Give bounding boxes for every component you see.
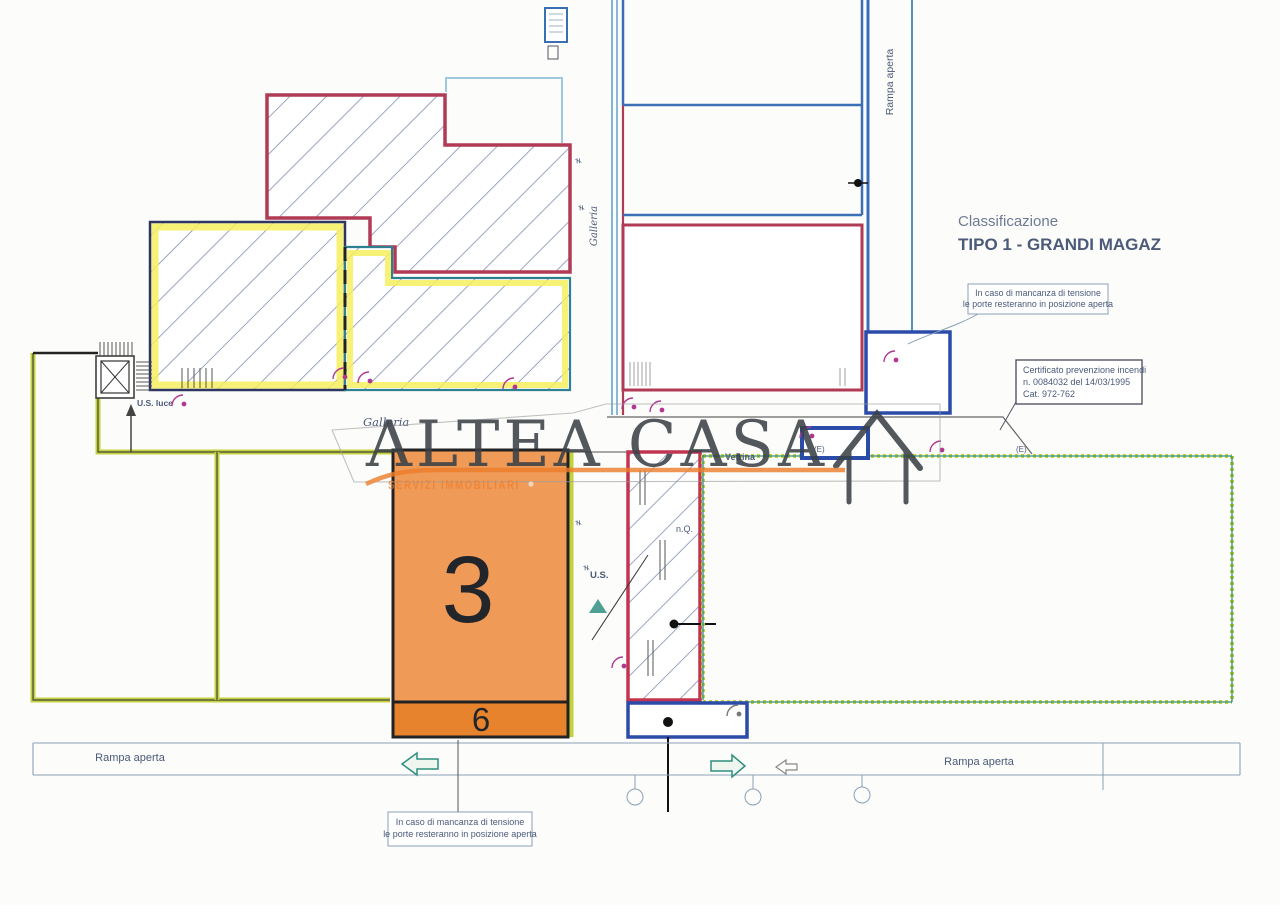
svg-text:≠: ≠ <box>572 520 583 526</box>
note-line: In caso di mancanza di tensione <box>396 817 525 827</box>
classification-title: Classificazione <box>958 213 1058 230</box>
ramp-right-label: Rampa aperta <box>944 756 1015 768</box>
exit-left-label: U.S. luce <box>137 398 173 408</box>
watermark-subtitle: SERVIZI IMMOBILIARI <box>388 480 520 492</box>
watermark-dot <box>528 481 533 486</box>
building-right-red <box>623 225 862 390</box>
exit-center-label: U.S. <box>590 570 608 581</box>
note-line: In caso di mancanza di tensione <box>975 288 1101 298</box>
stairwell-elevator <box>96 356 134 398</box>
emergency-mark-2: (E) <box>1016 445 1027 454</box>
door-note-bottom: In caso di mancanza di tensione le porte… <box>383 812 537 846</box>
certificate-line: Certificato prevenzione incendi <box>1023 365 1146 375</box>
certificate-line: Cat. 972-762 <box>1023 389 1075 399</box>
classification-type: TIPO 1 - GRANDI MAGAZ <box>958 235 1161 254</box>
note-line: le porte resteranno in posizione aperta <box>963 299 1113 309</box>
gallery-vertical-label: Galleria <box>589 206 600 246</box>
floorplan-scan-page: Rampa aperta 3 6 n.Q. <box>0 0 1280 905</box>
unit-number: 3 <box>442 537 495 643</box>
ramp-top-label: Rampa aperta <box>884 49 896 116</box>
column-dot <box>663 717 673 727</box>
certificate-line: n. 0084032 del 14/03/1995 <box>1023 377 1130 387</box>
ramp-left-label: Rampa aperta <box>95 752 166 764</box>
nq-label: n.Q. <box>676 524 693 534</box>
svg-text:≠: ≠ <box>575 205 586 211</box>
floorplan-drawing: Rampa aperta 3 6 n.Q. <box>0 0 1280 905</box>
note-line: le porte resteranno in posizione aperta <box>383 829 537 839</box>
unit-3-highlight: 3 6 <box>393 450 572 738</box>
unit-lower-number: 6 <box>472 701 490 738</box>
building-yellow-left <box>150 222 345 390</box>
svg-text:≠: ≠ <box>572 158 583 164</box>
vestibule-blue-box <box>866 332 950 413</box>
